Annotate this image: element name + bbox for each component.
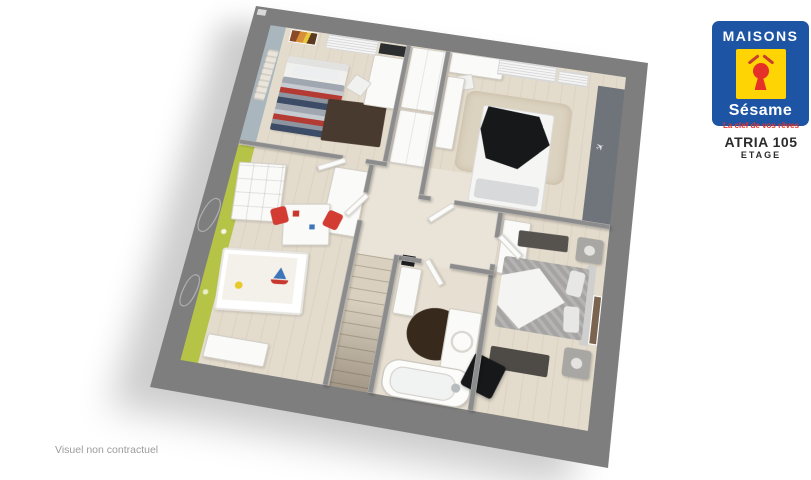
page: ✈ [0, 0, 811, 480]
toy [309, 224, 315, 229]
disclaimer-note: Visuel non contractuel [55, 444, 158, 456]
bathtub-basin [387, 365, 457, 403]
keyhole-circle-icon [753, 63, 769, 79]
brand-name-bottom: Sésame [712, 102, 809, 120]
plan-level: ETAGE [705, 150, 811, 160]
brand-name-top: MAISONS [712, 28, 809, 44]
kids-bed [214, 247, 310, 315]
master-nightstand [575, 237, 604, 265]
sink [449, 329, 475, 354]
bedroom2-bed [467, 105, 555, 213]
lamp-icon [570, 357, 583, 370]
master-nightstand [561, 347, 592, 380]
floorplan-render: ✈ [150, 6, 648, 468]
brand-tagline: La clef de vos rêves [705, 121, 811, 130]
pillow [563, 306, 579, 333]
plan-title: ATRIA 105 ETAGE [705, 134, 811, 160]
bed-head [473, 178, 539, 207]
lamp-icon [584, 245, 596, 257]
plan-model-name: ATRIA 105 [705, 134, 811, 150]
corner-notch [257, 9, 267, 16]
toy [293, 211, 300, 217]
airplane-decal-icon: ✈ [594, 142, 607, 155]
brand-logo: MAISONS Sésame [712, 21, 809, 126]
keyhole-logo-icon [736, 49, 786, 99]
master-bed [493, 252, 596, 347]
black-blanket [472, 106, 554, 191]
sailboat-sail-icon [273, 267, 287, 279]
keyhole-stem-icon [755, 77, 767, 90]
faucet-icon [450, 383, 461, 394]
sun-icon [234, 281, 243, 289]
sailboat-hull-icon [270, 279, 288, 284]
kids-bed-print [222, 254, 298, 304]
